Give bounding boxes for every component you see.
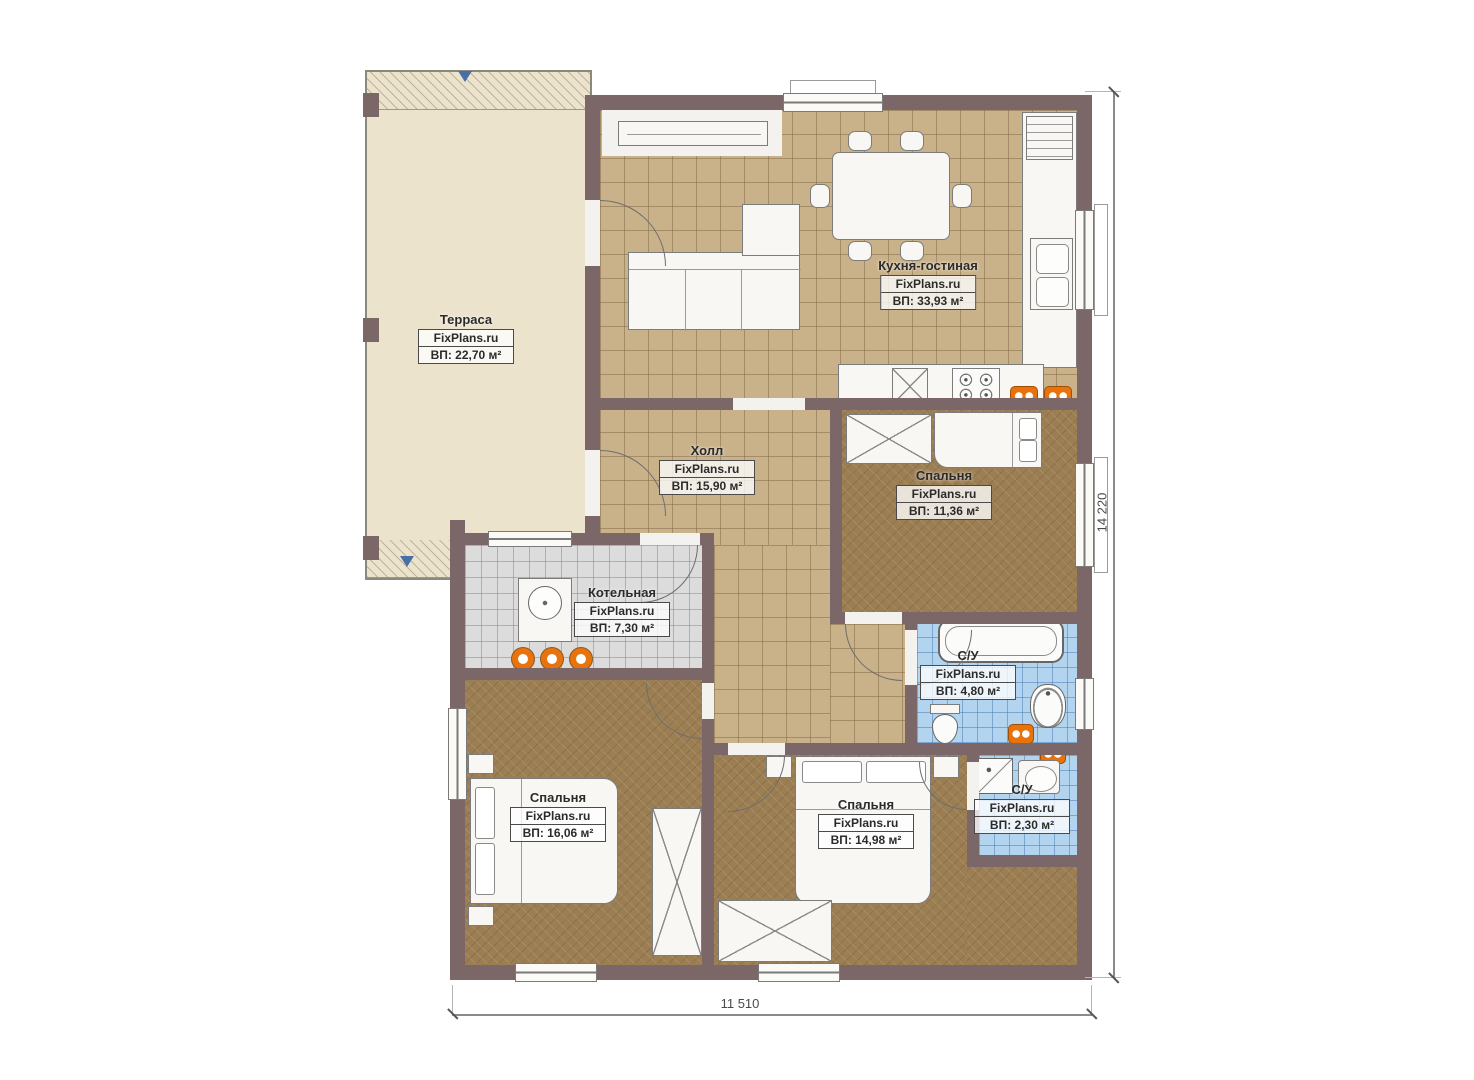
hall-floor xyxy=(714,545,830,755)
area-label: ВП: 22,70 м² xyxy=(419,346,513,363)
door-opening xyxy=(905,630,917,685)
window-sill xyxy=(790,80,876,94)
room-name: С/У xyxy=(920,648,1016,663)
extension-line xyxy=(452,985,453,1015)
window xyxy=(515,963,597,982)
watermark-label: FixPlans.ru xyxy=(660,461,754,477)
boiler-equipment xyxy=(541,648,563,670)
room-label-bedroom2: Спальня FixPlans.ru ВП: 16,06 м² xyxy=(510,790,606,842)
passage-opening xyxy=(733,398,805,410)
window xyxy=(488,531,572,547)
radiator xyxy=(1008,724,1034,744)
wall xyxy=(830,410,842,624)
label-box: FixPlans.ru ВП: 11,36 м² xyxy=(896,485,992,520)
tv-console xyxy=(618,121,768,146)
extension-line xyxy=(1091,985,1092,1015)
area-label: ВП: 16,06 м² xyxy=(511,824,605,841)
wardrobe xyxy=(846,414,932,464)
room-label-boiler: Котельная FixPlans.ru ВП: 7,30 м² xyxy=(574,585,670,637)
chair xyxy=(952,184,972,208)
window xyxy=(1075,678,1094,730)
floor-plan: 14 220 11 510 Терраса FixPlans.ru ВП: 22… xyxy=(0,0,1474,1080)
dimension-label-height: 14 220 xyxy=(1095,483,1110,543)
watermark-label: FixPlans.ru xyxy=(975,800,1069,816)
wall xyxy=(702,533,714,965)
boiler-equipment xyxy=(512,648,534,670)
window xyxy=(1075,210,1094,310)
watermark-label: FixPlans.ru xyxy=(819,815,913,831)
door-opening xyxy=(728,743,785,755)
watermark-label: FixPlans.ru xyxy=(511,808,605,824)
label-box: FixPlans.ru ВП: 15,90 м² xyxy=(659,460,755,495)
fridge xyxy=(1026,116,1073,160)
chair xyxy=(900,131,924,151)
label-box: FixPlans.ru ВП: 4,80 м² xyxy=(920,665,1016,700)
chair xyxy=(848,241,872,261)
boiler-equipment xyxy=(570,648,592,670)
door-opening xyxy=(585,450,600,516)
area-label: ВП: 14,98 м² xyxy=(819,831,913,848)
watermark-label: FixPlans.ru xyxy=(575,603,669,619)
room-name: Спальня xyxy=(510,790,606,805)
wall xyxy=(967,855,1092,867)
bedroom3-floor xyxy=(967,867,1077,965)
chair xyxy=(810,184,830,208)
terrace-post xyxy=(363,536,379,560)
sink xyxy=(1030,684,1066,728)
room-name: Спальня xyxy=(818,797,914,812)
watermark-label: FixPlans.ru xyxy=(921,666,1015,682)
chair xyxy=(848,131,872,151)
room-name: С/У xyxy=(974,782,1070,797)
room-label-bedroom3: Спальня FixPlans.ru ВП: 14,98 м² xyxy=(818,797,914,849)
dimension-line-vertical xyxy=(1113,92,1115,977)
label-box: FixPlans.ru ВП: 7,30 м² xyxy=(574,602,670,637)
bed xyxy=(934,412,1042,468)
room-label-bedroom1: Спальня FixPlans.ru ВП: 11,36 м² xyxy=(896,468,992,520)
toilet-tank xyxy=(930,704,960,714)
dimension-label-width: 11 510 xyxy=(660,996,820,1011)
area-label: ВП: 7,30 м² xyxy=(575,619,669,636)
wall xyxy=(585,398,1092,410)
room-label-kitchen: Кухня-гостиная FixPlans.ru ВП: 33,93 м² xyxy=(878,258,978,310)
watermark-label: FixPlans.ru xyxy=(419,330,513,346)
area-label: ВП: 15,90 м² xyxy=(660,477,754,494)
terrace-roof-hatch-top xyxy=(367,72,590,110)
nightstand xyxy=(468,754,494,774)
room-label-terrace: Терраса FixPlans.ru ВП: 22,70 м² xyxy=(418,312,514,364)
door-opening xyxy=(585,200,600,266)
area-label: ВП: 4,80 м² xyxy=(921,682,1015,699)
label-box: FixPlans.ru ВП: 14,98 м² xyxy=(818,814,914,849)
nightstand xyxy=(468,906,494,926)
roof-marker-icon xyxy=(400,556,414,567)
window xyxy=(448,708,467,800)
room-label-bath1: С/У FixPlans.ru ВП: 4,80 м² xyxy=(920,648,1016,700)
wall xyxy=(465,668,702,680)
dining-table xyxy=(832,152,950,240)
window xyxy=(758,963,840,982)
area-label: ВП: 2,30 м² xyxy=(975,816,1069,833)
roof-marker-icon xyxy=(458,71,472,82)
dimension-line-horizontal xyxy=(452,1014,1092,1016)
area-label: ВП: 11,36 м² xyxy=(897,502,991,519)
room-name: Холл xyxy=(659,443,755,458)
label-box: FixPlans.ru ВП: 33,93 м² xyxy=(880,275,976,310)
room-name: Кухня-гостиная xyxy=(878,258,978,273)
label-box: FixPlans.ru ВП: 2,30 м² xyxy=(974,799,1070,834)
room-label-hall: Холл FixPlans.ru ВП: 15,90 м² xyxy=(659,443,755,495)
label-box: FixPlans.ru ВП: 22,70 м² xyxy=(418,329,514,364)
window xyxy=(783,93,883,112)
door-opening xyxy=(702,683,714,719)
wardrobe xyxy=(718,900,832,962)
room-name: Котельная xyxy=(574,585,670,600)
watermark-label: FixPlans.ru xyxy=(897,486,991,502)
area-label: ВП: 33,93 м² xyxy=(881,292,975,309)
boiler-tank xyxy=(528,586,562,620)
room-name: Терраса xyxy=(418,312,514,327)
wardrobe xyxy=(652,808,702,956)
window-sill xyxy=(1094,204,1108,316)
door-opening xyxy=(845,612,902,624)
room-name: Спальня xyxy=(896,468,992,483)
kitchen-sink xyxy=(1030,238,1073,310)
window xyxy=(1075,463,1094,567)
label-box: FixPlans.ru ВП: 16,06 м² xyxy=(510,807,606,842)
sofa-chaise xyxy=(742,204,800,256)
watermark-label: FixPlans.ru xyxy=(881,276,975,292)
terrace-post xyxy=(363,93,379,117)
terrace-post xyxy=(363,318,379,342)
door-opening xyxy=(640,533,700,545)
room-label-bath2: С/У FixPlans.ru ВП: 2,30 м² xyxy=(974,782,1070,834)
